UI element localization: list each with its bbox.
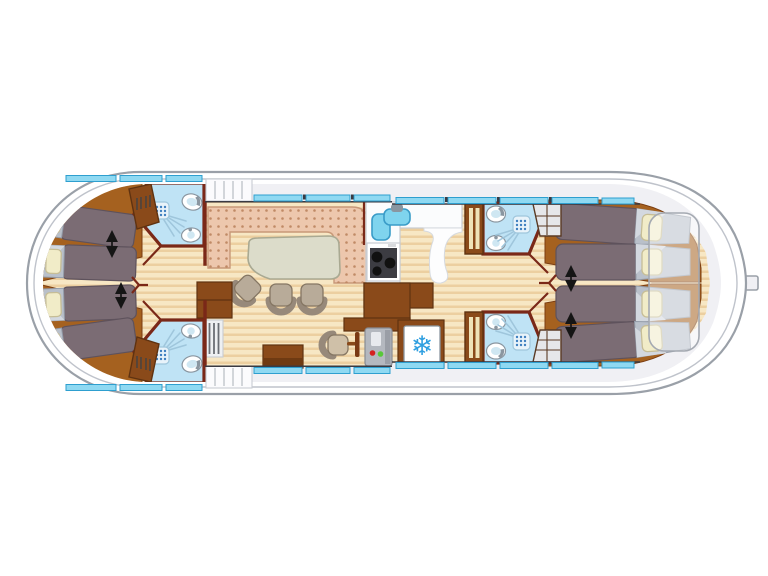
control-panel: [365, 328, 392, 366]
window: [448, 363, 496, 369]
galley-cabinet: [364, 283, 410, 322]
aft-deck-outline: [649, 213, 699, 351]
window: [254, 195, 302, 201]
window: [66, 176, 116, 182]
interior: ❄: [40, 183, 723, 383]
shower-room-door: [465, 312, 483, 363]
window: [602, 198, 634, 204]
window: [396, 363, 444, 369]
salon-side-table: [263, 345, 303, 368]
window: [552, 363, 598, 369]
window: [448, 198, 496, 204]
window: [500, 363, 548, 369]
toilet: [487, 206, 506, 222]
window: [602, 362, 634, 368]
entry-steps-top: [206, 179, 252, 201]
window: [354, 368, 390, 374]
window: [552, 198, 598, 204]
window: [396, 198, 444, 204]
window: [120, 385, 162, 391]
shower-room-door: [465, 203, 483, 254]
window: [66, 385, 116, 391]
window: [254, 368, 302, 374]
red-indicator-icon: [370, 350, 376, 356]
entry-steps-bottom: [206, 366, 252, 388]
window: [500, 198, 548, 204]
window: [166, 176, 202, 182]
dining-table: [248, 236, 340, 279]
green-indicator-icon: [378, 351, 384, 357]
window: [166, 385, 202, 391]
floor-plan-canvas: ❄: [0, 0, 768, 576]
stove-knobs: [388, 244, 396, 247]
boat-floor-plan: ❄: [0, 0, 768, 576]
bow-bed-2: [41, 244, 136, 281]
faucet: [391, 204, 403, 212]
window: [120, 176, 162, 182]
freezer-icon: ❄: [411, 331, 434, 362]
fridge: ❄: [398, 320, 444, 368]
window: [306, 195, 350, 201]
stove: [367, 243, 400, 281]
bow-bed-3: [41, 285, 136, 322]
toilet: [487, 343, 506, 359]
window: [354, 195, 390, 201]
window: [306, 368, 350, 374]
